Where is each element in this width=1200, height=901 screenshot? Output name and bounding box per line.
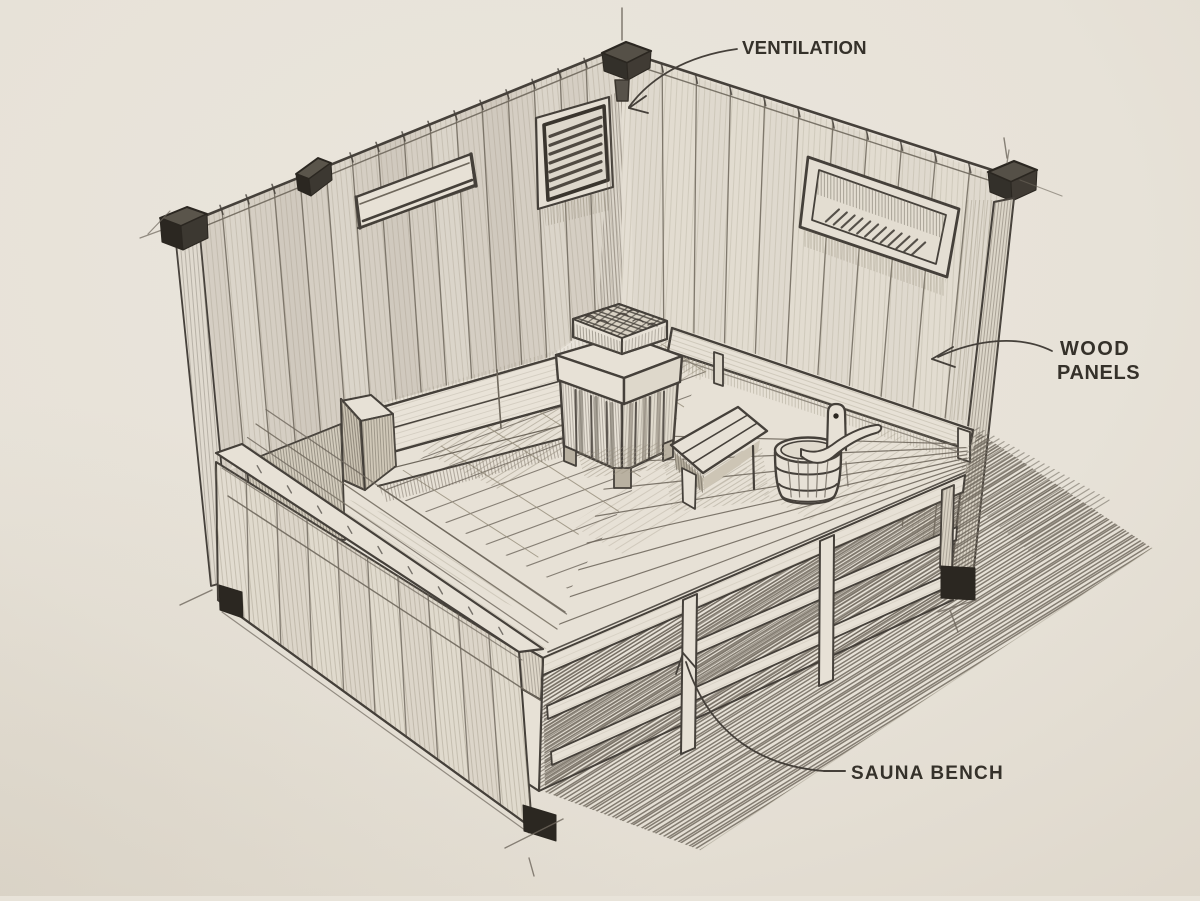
svg-text:PANELS: PANELS [1057, 362, 1140, 384]
svg-text:WOOD: WOOD [1060, 338, 1130, 360]
svg-text:SAUNA BENCH: SAUNA BENCH [851, 763, 1004, 784]
svg-text:VENTILATION: VENTILATION [742, 37, 867, 58]
